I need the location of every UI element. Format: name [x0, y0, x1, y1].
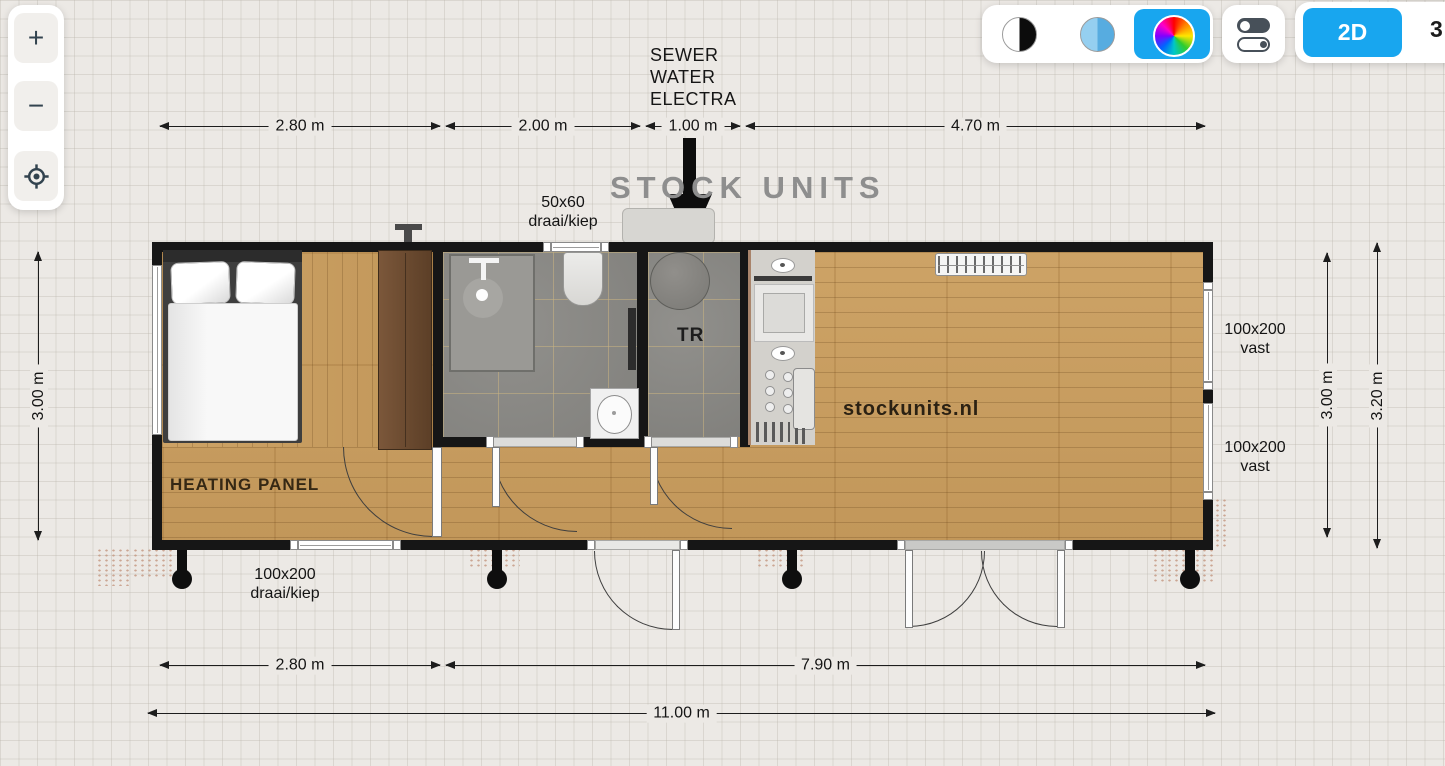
gravel-patch — [96, 548, 132, 586]
toilet-base[interactable] — [590, 388, 639, 439]
view-mode-monochrome-button[interactable] — [1002, 17, 1037, 52]
dimension-bottom-2: 7.90 m — [446, 665, 1205, 666]
tr-door[interactable] — [650, 447, 658, 505]
tr-door-threshold — [650, 437, 732, 447]
window-top-50x60[interactable] — [551, 242, 601, 252]
window-label-bottom: 100x200draai/kiep — [225, 565, 345, 603]
bathroom-door-threshold — [492, 437, 578, 447]
entry-door-threshold — [595, 540, 680, 550]
utility-connection-box[interactable] — [622, 208, 715, 244]
bathroom-door[interactable] — [492, 447, 500, 507]
dimension-top-4: 4.70 m — [746, 126, 1205, 127]
towel-radiator[interactable] — [628, 308, 636, 370]
wardrobe[interactable] — [378, 250, 432, 450]
window-bottom-100x200[interactable] — [298, 540, 393, 550]
window-label-top: 50x60draai/kiep — [505, 193, 621, 231]
floorplan[interactable]: TR stockunits.nl — [152, 242, 1213, 550]
shower[interactable] — [449, 254, 535, 372]
entry-door-arc — [594, 551, 673, 630]
dimension-top-2: 2.00 m — [446, 126, 640, 127]
kitchen-knob — [771, 258, 795, 273]
dimension-bottom-1: 2.80 m — [160, 665, 440, 666]
downspout-icon[interactable] — [177, 550, 187, 574]
wall-bathroom-left[interactable] — [433, 242, 443, 447]
view-mode-color-button[interactable] — [1134, 9, 1210, 59]
layers-panel — [1222, 5, 1285, 63]
window-label-right-lower: 100x200vast — [1215, 438, 1295, 476]
dimension-bottom-total: 11.00 m — [148, 713, 1215, 714]
3d-mode-label: 3 — [1430, 16, 1443, 42]
double-door-right[interactable] — [1057, 550, 1065, 628]
color-wheel-icon — [1153, 15, 1195, 57]
2d-mode-button[interactable]: 2D — [1303, 8, 1402, 57]
toggle-off-icon — [1237, 37, 1270, 52]
wall-bathroom-bottom-left[interactable] — [443, 437, 492, 447]
zoom-controls-panel: + − — [8, 5, 64, 210]
window-right-lower[interactable] — [1203, 403, 1213, 492]
double-door-right-arc — [981, 551, 1057, 627]
double-door-left[interactable] — [905, 550, 913, 628]
gravel-patch — [132, 548, 176, 578]
brand-text: stockunits.nl — [843, 398, 979, 421]
toggle-on-icon — [1237, 18, 1270, 33]
bed[interactable] — [163, 250, 302, 443]
watermark-text: STOCK UNITS — [610, 170, 886, 206]
dimension-top-1: 2.80 m — [160, 126, 440, 127]
target-icon — [23, 163, 50, 190]
bedroom-door[interactable] — [432, 447, 442, 537]
downspout-icon[interactable] — [492, 550, 502, 574]
center-view-button[interactable] — [14, 151, 58, 201]
downspout-icon[interactable] — [787, 550, 797, 574]
2d-mode-label: 2D — [1338, 19, 1367, 46]
kitchen-rack — [756, 422, 790, 442]
oven — [754, 284, 814, 342]
bed-duvet — [168, 303, 298, 441]
heating-panel-label: HEATING PANEL — [170, 475, 319, 495]
double-door-threshold — [905, 540, 1065, 550]
air-conditioner[interactable] — [935, 253, 1027, 276]
pillow — [170, 261, 230, 305]
pillow — [235, 261, 295, 305]
dimension-right-outer: 3.20 m — [1377, 243, 1378, 548]
kitchen-unit[interactable] — [748, 250, 815, 445]
boiler[interactable] — [650, 252, 710, 310]
minus-icon: − — [28, 92, 44, 120]
3d-mode-button[interactable]: 3 — [1430, 16, 1443, 43]
window-right-upper[interactable] — [1203, 290, 1213, 382]
zoom-out-button[interactable]: − — [14, 81, 58, 131]
bed-headboard — [163, 250, 302, 262]
dimension-mode-panel: 2D 3 — [1295, 2, 1445, 63]
downspout-icon[interactable] — [1185, 550, 1195, 574]
floorplan-canvas[interactable]: + − 2D — [0, 0, 1445, 766]
dimension-right-inner: 3.00 m — [1327, 253, 1328, 537]
kitchen-counter-edge — [754, 276, 812, 281]
wall-hung-toilet[interactable] — [563, 252, 603, 306]
layers-toggle-button[interactable] — [1222, 5, 1285, 63]
shower-head-icon — [476, 289, 488, 301]
kitchen-knob — [771, 346, 795, 361]
window-label-right-upper: 100x200vast — [1215, 320, 1295, 358]
dimension-left: 3.00 m — [38, 252, 39, 540]
entry-door[interactable] — [672, 550, 680, 630]
window-left[interactable] — [152, 265, 162, 435]
plus-icon: + — [28, 24, 44, 52]
utilities-label: SEWER WATER ELECTRA — [650, 44, 737, 110]
kitchen-sink — [793, 368, 815, 430]
vent-stem — [404, 229, 412, 243]
technical-room-label: TR — [677, 325, 704, 347]
dimension-top-3: 1.00 m — [646, 126, 740, 127]
zoom-in-button[interactable]: + — [14, 13, 58, 63]
view-mode-tinted-button[interactable] — [1080, 17, 1115, 52]
double-door-left-arc — [909, 551, 985, 627]
render-mode-panel — [982, 5, 1213, 63]
